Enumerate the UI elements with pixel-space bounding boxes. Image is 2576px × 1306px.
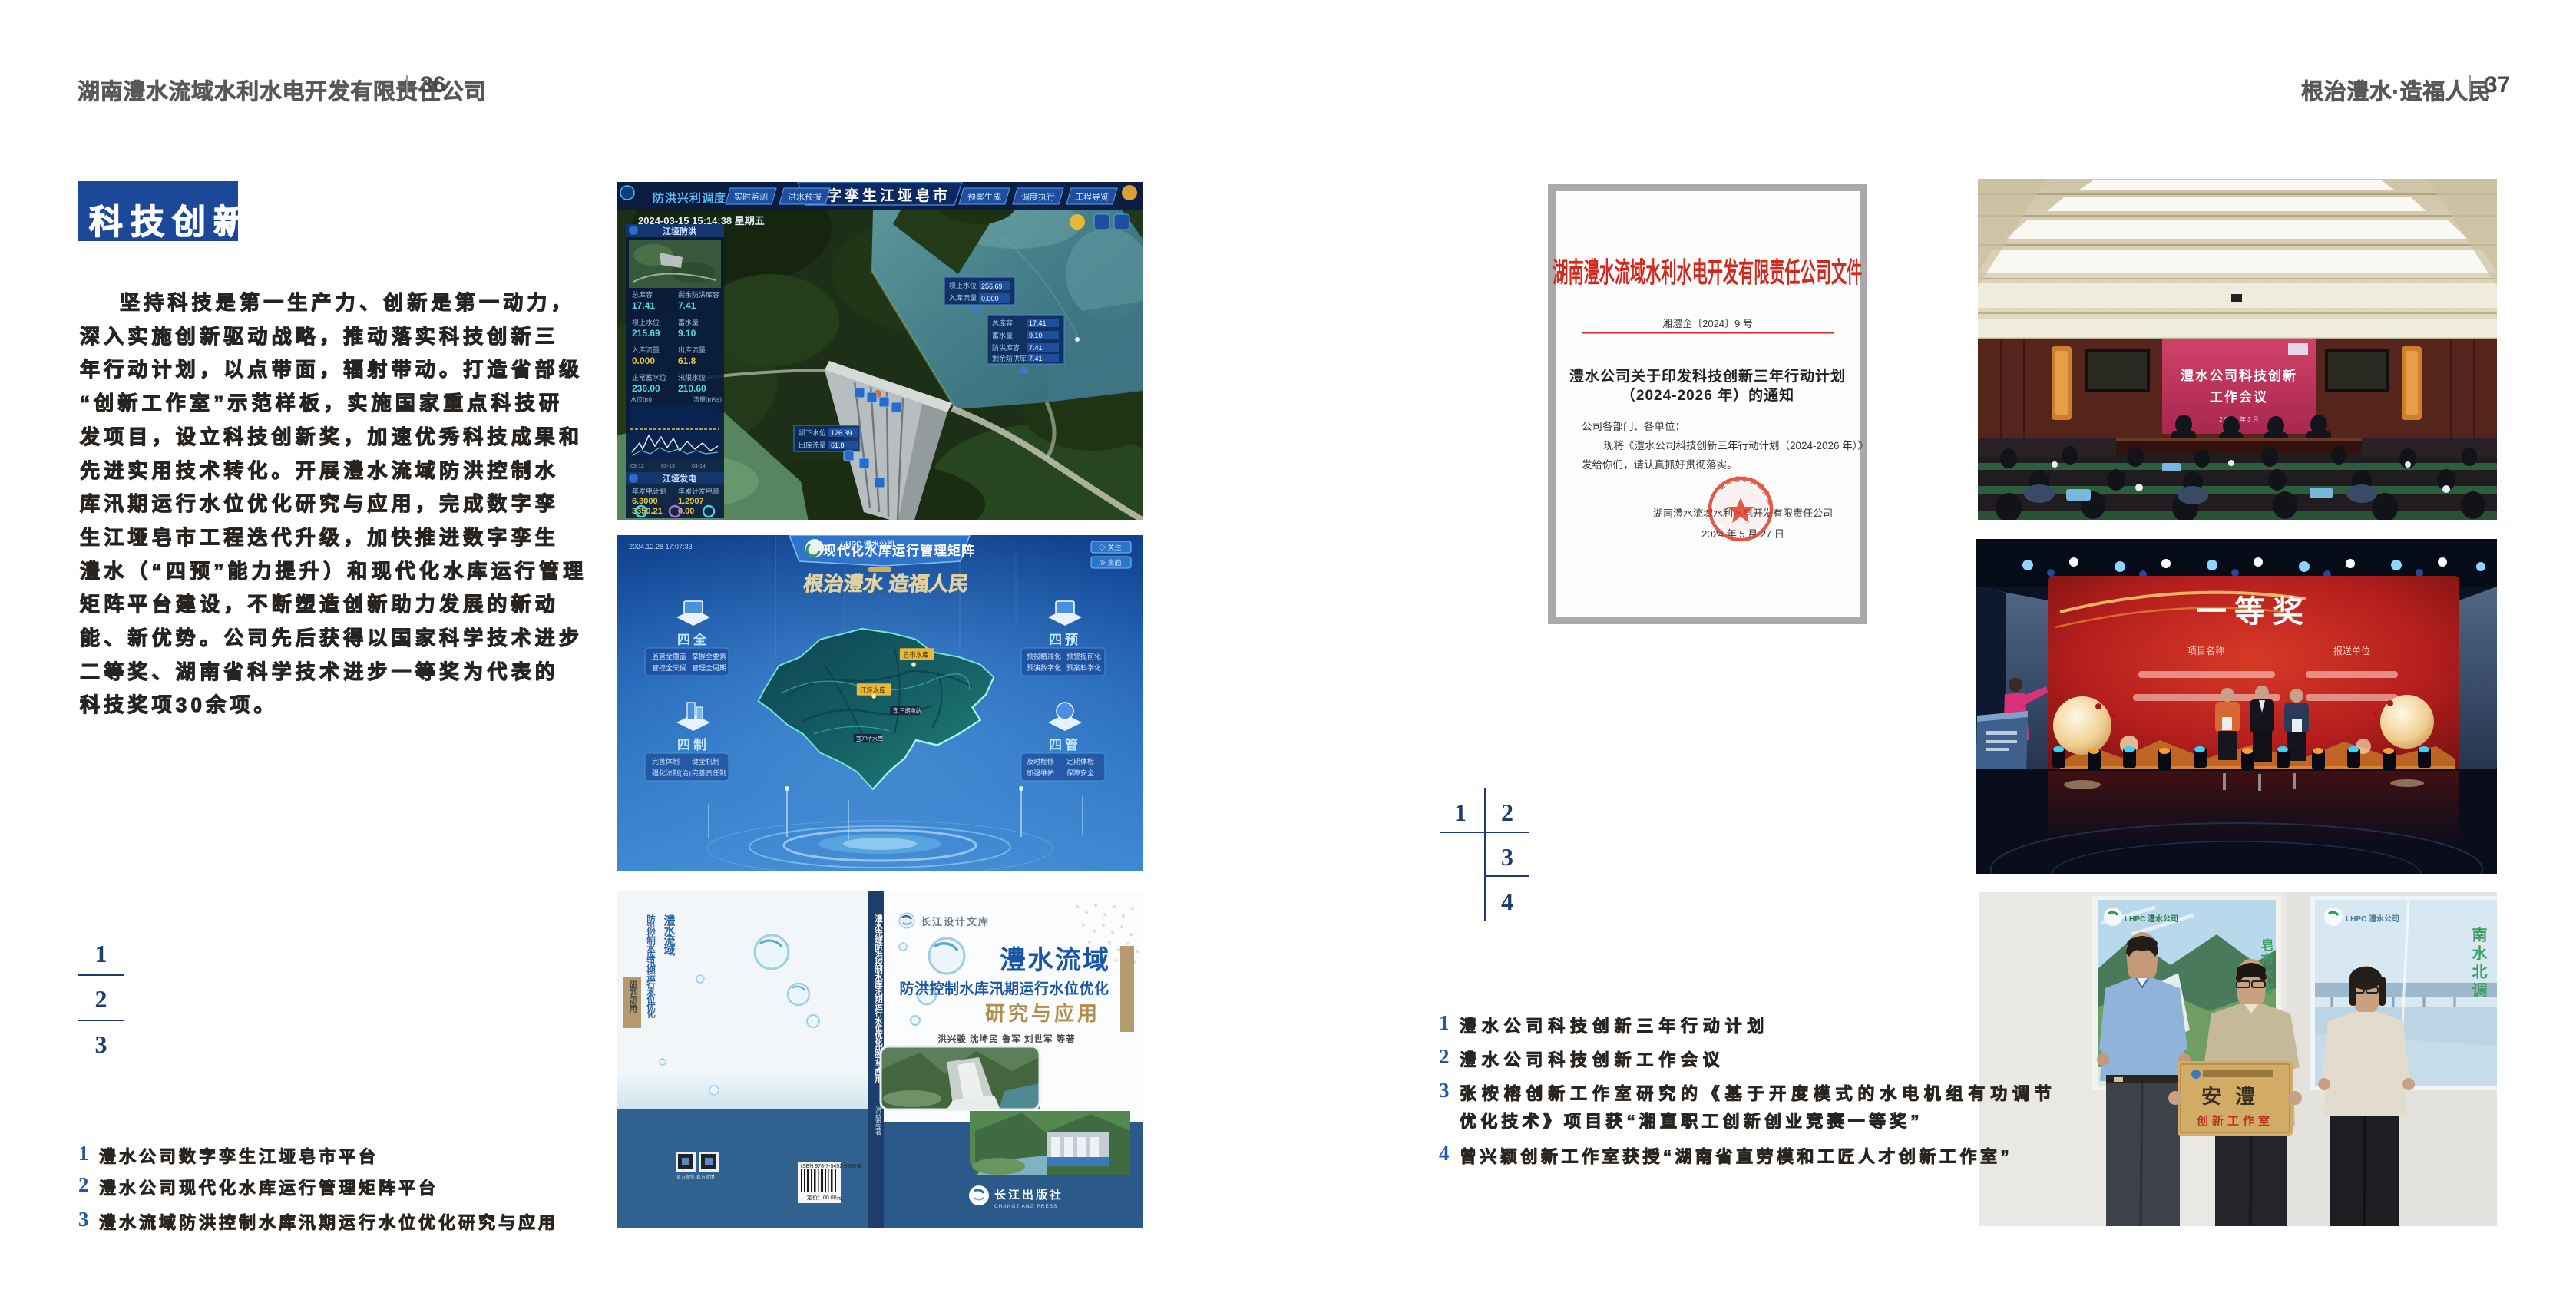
svg-text:长江出版社: 长江出版社 — [994, 1188, 1063, 1202]
svg-text:出库流量: 出库流量 — [799, 441, 826, 449]
svg-text:预案科学化: 预案科学化 — [1066, 663, 1101, 672]
svg-text:澧水流域: 澧水流域 — [663, 914, 676, 957]
svg-text:保障安全: 保障安全 — [1066, 769, 1094, 777]
svg-text:南水北调: 南水北调 — [2469, 927, 2487, 1000]
svg-text:洪兴骏 等著: 洪兴骏 等著 — [875, 1106, 882, 1136]
svg-text:四管: 四管 — [1049, 737, 1081, 752]
svg-text:预演数字化: 预演数字化 — [1027, 663, 1061, 672]
svg-text:管控全天候: 管控全天候 — [652, 663, 686, 672]
svg-text:研究与应用: 研究与应用 — [985, 1002, 1100, 1025]
svg-text:入库流量: 入库流量 — [949, 293, 977, 302]
svg-text:江垭发电: 江垭发电 — [663, 473, 696, 484]
svg-text:管理全周期: 管理全周期 — [692, 663, 726, 672]
svg-text:澧水公司关于印发科技创新三年行动计划: 澧水公司关于印发科技创新三年行动计划 — [1569, 367, 1846, 385]
svg-text:澧水公司科技创新: 澧水公司科技创新 — [2181, 368, 2297, 383]
svg-text:≫ 桌面: ≫ 桌面 — [1099, 558, 1122, 567]
svg-text:掌握全要素: 掌握全要素 — [692, 652, 726, 660]
svg-text:正常蓄水位: 正常蓄水位 — [632, 373, 666, 382]
svg-text:210.60: 210.60 — [678, 383, 706, 394]
svg-text:完善体制: 完善体制 — [652, 757, 680, 765]
svg-text:7.41: 7.41 — [678, 300, 696, 311]
svg-text:澧水流域: 澧水流域 — [1000, 946, 1110, 975]
svg-text:官方微信 官方微博: 官方微信 官方微博 — [676, 1174, 715, 1180]
svg-text:四预: 四预 — [1049, 633, 1081, 647]
svg-text:监管全覆盖: 监管全覆盖 — [652, 652, 686, 660]
svg-text:现将《澧水公司科技创新三年行动计划（2024-2026 年）: 现将《澧水公司科技创新三年行动计划（2024-2026 年）》印 — [1603, 440, 1867, 451]
svg-text:剩余防洪库容: 剩余防洪库容 — [678, 290, 719, 299]
svg-text:现代化水库运行管理矩阵: 现代化水库运行管理矩阵 — [823, 543, 975, 558]
svg-text:防洪兴利调度: 防洪兴利调度 — [653, 191, 726, 205]
svg-text:年发电计划: 年发电计划 — [632, 487, 666, 495]
svg-text:预案生成: 预案生成 — [967, 191, 1001, 202]
svg-text:6.3000: 6.3000 — [632, 497, 658, 506]
svg-text:流量(m³/s): 流量(m³/s) — [693, 395, 722, 403]
svg-text:（2024-2026 年）的通知: （2024-2026 年）的通知 — [1621, 386, 1794, 404]
svg-text:江垭防洪: 江垭防洪 — [663, 226, 696, 236]
svg-text:安澧: 安澧 — [2201, 1085, 2269, 1108]
svg-text:9.10: 9.10 — [678, 328, 696, 339]
svg-text:256.69: 256.69 — [981, 283, 1003, 290]
svg-text:水: 水 — [1741, 475, 1749, 483]
svg-text:定期体检: 定期体检 — [1066, 757, 1094, 765]
svg-text:ISBN 978-7-5492-9565-8: ISBN 978-7-5492-9565-8 — [801, 1164, 861, 1169]
svg-text:预报精准化: 预报精准化 — [1027, 652, 1061, 660]
svg-text:长江设计文库: 长江设计文库 — [921, 916, 990, 927]
svg-text:工程导览: 工程导览 — [1075, 191, 1109, 202]
svg-text:CHANGJIANG PRESS: CHANGJIANG PRESS — [994, 1204, 1057, 1209]
svg-text:入库流量: 入库流量 — [632, 346, 660, 354]
svg-text:防洪控制水库汛期运行水位优化: 防洪控制水库汛期运行水位优化 — [899, 980, 1109, 997]
svg-text:出库流量: 出库流量 — [678, 346, 706, 354]
svg-text:完善责任制: 完善责任制 — [692, 769, 726, 777]
svg-text:9.10: 9.10 — [1029, 332, 1043, 339]
svg-text:坝上水位: 坝上水位 — [949, 281, 977, 289]
svg-text:四制: 四制 — [677, 737, 709, 752]
svg-text:蓄水量: 蓄水量 — [678, 318, 699, 326]
svg-text:湘澧企〔2024〕9 号: 湘澧企〔2024〕9 号 — [1662, 318, 1753, 329]
svg-text:0.000: 0.000 — [632, 355, 655, 366]
svg-text:◇ 关注: ◇ 关注 — [1099, 543, 1122, 551]
svg-text:根治澧水 造福人民: 根治澧水 造福人民 — [802, 572, 971, 595]
svg-text:LHPC 澧水公司: LHPC 澧水公司 — [2125, 914, 2178, 924]
svg-text:防洪库容: 防洪库容 — [992, 343, 1020, 352]
svg-text:四全: 四全 — [677, 632, 709, 647]
svg-text:洪兴骏 沈坤民 鲁军 刘世军 等著: 洪兴骏 沈坤民 鲁军 刘世军 等著 — [937, 1033, 1075, 1044]
svg-text:61.8: 61.8 — [831, 441, 845, 449]
svg-text:强化法制(治): 强化法制(治) — [652, 769, 691, 777]
svg-text:1.2907: 1.2907 — [678, 497, 704, 506]
svg-text:03-12: 03-12 — [630, 464, 644, 469]
svg-text:坝上水位: 坝上水位 — [632, 318, 660, 326]
svg-text:报送单位: 报送单位 — [2333, 645, 2370, 656]
svg-text:17.41: 17.41 — [1029, 319, 1047, 327]
svg-text:预警提前化: 预警提前化 — [1066, 652, 1101, 660]
svg-text:宜冲桥水库: 宜冲桥水库 — [856, 734, 883, 742]
svg-text:皂市水库: 皂市水库 — [903, 650, 929, 660]
svg-text:公司各部门、各单位：: 公司各部门、各单位： — [1582, 421, 1685, 432]
svg-text:创新工作室: 创新工作室 — [2196, 1114, 2273, 1128]
svg-text:及时检修: 及时检修 — [1027, 757, 1054, 765]
svg-text:17.41: 17.41 — [632, 300, 655, 311]
svg-text:蓄水量: 蓄水量 — [992, 331, 1013, 339]
svg-text:LHPC 澧水公司: LHPC 澧水公司 — [2346, 914, 2399, 924]
svg-text:坝下水位: 坝下水位 — [799, 428, 826, 437]
svg-text:汛限水位: 汛限水位 — [678, 373, 706, 382]
svg-text:215.69: 215.69 — [632, 328, 660, 339]
svg-text:一等奖: 一等奖 — [2196, 595, 2311, 629]
svg-text:总库容: 总库容 — [632, 290, 653, 299]
svg-text:总库容: 总库容 — [992, 319, 1013, 327]
svg-text:0.000: 0.000 — [981, 295, 999, 303]
svg-text:实时监测: 实时监测 — [734, 191, 768, 202]
svg-text:61.8: 61.8 — [678, 355, 696, 366]
svg-text:水位(m): 水位(m) — [630, 395, 652, 403]
svg-text:防洪控制水库汛期运行水位优化: 防洪控制水库汛期运行水位优化 — [646, 914, 656, 1019]
svg-text:2024.12.28 17:07:33: 2024.12.28 17:07:33 — [629, 543, 693, 551]
svg-text:工作会议: 工作会议 — [2210, 389, 2268, 405]
svg-text:7.41: 7.41 — [1029, 355, 1043, 362]
svg-text:03-14: 03-14 — [692, 464, 706, 469]
svg-text:宜.三期电站: 宜.三期电站 — [893, 706, 921, 715]
svg-text:定价：00.00元: 定价：00.00元 — [807, 1194, 842, 1201]
svg-text:江垭水库: 江垭水库 — [860, 686, 886, 695]
svg-text:236.00: 236.00 — [632, 383, 660, 394]
svg-text:调度执行: 调度执行 — [1021, 191, 1055, 202]
svg-text:湖南澧水流域水利水电开发有限责任公司文件: 湖南澧水流域水利水电开发有限责任公司文件 — [1553, 256, 1862, 289]
svg-text:加强维护: 加强维护 — [1027, 769, 1054, 777]
svg-text:7.41: 7.41 — [1029, 344, 1043, 352]
svg-text:洪水预报: 洪水预报 — [788, 191, 822, 202]
svg-text:03-13: 03-13 — [661, 464, 675, 469]
svg-text:健全机制: 健全机制 — [692, 757, 719, 765]
svg-text:发给你们，请认真抓好贯彻落实。: 发给你们，请认真抓好贯彻落实。 — [1582, 459, 1738, 471]
svg-text:年累计发电量: 年累计发电量 — [678, 487, 719, 495]
svg-text:数字孪生江垭皂市: 数字孪生江垭皂市 — [809, 187, 951, 204]
svg-text:项目名称: 项目名称 — [2187, 645, 2224, 656]
svg-text:126.39: 126.39 — [831, 429, 852, 437]
